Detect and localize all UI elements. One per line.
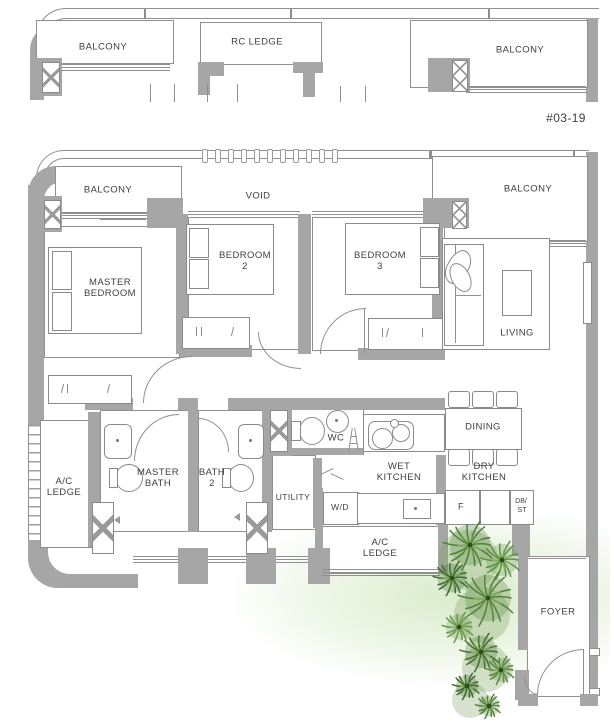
- window-x-marker-icon: [452, 201, 467, 229]
- window-lines: [276, 556, 308, 563]
- label-db-line2: ST: [518, 507, 527, 515]
- line: [290, 8, 292, 18]
- ladder-rung: [350, 443, 357, 444]
- toilet-tank: [109, 468, 118, 488]
- label-bath-2: BATH 2: [195, 467, 229, 489]
- toilet-icon: [228, 464, 254, 492]
- line: [528, 558, 586, 559]
- wall: [438, 522, 448, 574]
- floor-plan: BALCONY RC LEDGE BALCONY #03-19: [0, 0, 614, 728]
- wall: [198, 62, 210, 95]
- window-lines: [62, 212, 148, 219]
- line: [488, 8, 490, 18]
- label-balcony-left: BALCONY: [84, 184, 132, 195]
- wardrobe: [182, 317, 250, 349]
- door-arc-bedroom-2: [258, 332, 301, 369]
- label-balcony-right: BALCONY: [504, 183, 552, 194]
- line: [174, 84, 175, 102]
- window-x-marker-icon: [452, 60, 468, 92]
- dining-chair: [448, 391, 470, 408]
- window-x-marker-icon: [92, 502, 114, 554]
- vent-slot-icon: [267, 149, 273, 163]
- label-ac-ledge-kitchen: A/C LEDGE: [359, 537, 401, 559]
- vent-slot-icon: [215, 149, 221, 163]
- ladder-rung: [351, 436, 357, 437]
- label-upper-balcony-left: BALCONY: [79, 41, 127, 52]
- pillow: [420, 227, 439, 257]
- toilet-icon: [299, 417, 325, 445]
- window-lines: [322, 569, 440, 576]
- dry-kitchen-cabinet: [480, 490, 510, 525]
- label-master-bath: MASTER BATH: [132, 467, 184, 489]
- pillow: [52, 292, 72, 331]
- dining-chair: [472, 391, 494, 408]
- coffee-table: [502, 270, 532, 316]
- label-utility: UTILITY: [276, 492, 310, 502]
- wardrobe-tick: [201, 327, 202, 336]
- window-x-marker-icon: [246, 502, 268, 554]
- wall: [518, 694, 538, 706]
- pillow: [52, 251, 72, 290]
- wall: [228, 398, 445, 410]
- line: [150, 84, 151, 102]
- wall: [518, 552, 528, 650]
- wall: [580, 694, 598, 706]
- line: [365, 86, 366, 102]
- pillow: [420, 258, 439, 288]
- label-void: VOID: [246, 190, 271, 201]
- shower-arrow-icon: [234, 513, 240, 521]
- label-db-line1: DB/: [515, 498, 527, 506]
- label-washer-dryer: W/D: [331, 502, 349, 512]
- wall: [178, 548, 208, 584]
- line: [144, 8, 146, 18]
- wardrobe-tick: [196, 327, 197, 336]
- label-wc: WC: [328, 432, 345, 443]
- pillow: [189, 259, 209, 289]
- unit-number: #03-19: [546, 111, 586, 125]
- wardrobe-tick: [67, 384, 68, 393]
- label-bedroom-2: BEDROOM 2: [216, 250, 274, 272]
- toilet-tank: [291, 421, 301, 441]
- vent-slot-icon: [319, 149, 325, 163]
- label-dry-kitchen: DRY KITCHEN: [455, 461, 513, 483]
- window-x-marker-icon: [44, 200, 61, 229]
- wall: [285, 448, 363, 455]
- basin-dot: [249, 439, 252, 442]
- door-arc-master-bedroom: [143, 356, 192, 403]
- sink-dot: [414, 507, 417, 510]
- label-foyer: FOYER: [541, 606, 576, 617]
- label-wet-kitchen: WET KITCHEN: [370, 461, 428, 483]
- vent-slot-icon: [254, 149, 260, 163]
- line: [237, 84, 238, 102]
- shower-arrow-icon: [114, 516, 120, 524]
- label-dining: DINING: [465, 421, 501, 432]
- wardrobe: [368, 318, 445, 350]
- pillow: [189, 228, 209, 258]
- vent-slot-icon: [332, 149, 338, 163]
- wardrobe-tick: [422, 328, 423, 337]
- label-master-bedroom: MASTER BEDROOM: [77, 277, 143, 299]
- wall: [308, 548, 330, 584]
- label-living: LIVING: [500, 327, 534, 338]
- vent-slot-icon: [280, 149, 286, 163]
- wardrobe-tick: [382, 328, 383, 337]
- wall: [303, 62, 315, 97]
- dining-chair: [496, 391, 518, 408]
- vent-slot-icon: [202, 149, 208, 163]
- label-bedroom-3: BEDROOM 3: [351, 250, 409, 272]
- burner-small: [390, 419, 399, 428]
- label-upper-balcony-right: BALCONY: [496, 44, 544, 55]
- basin-dot: [335, 419, 338, 422]
- window-x-marker-icon: [42, 62, 60, 93]
- label-upper-rc-ledge: RC LEDGE: [231, 36, 283, 47]
- line: [340, 86, 341, 102]
- sliding-door-line: [100, 219, 146, 220]
- window-lines: [133, 556, 178, 563]
- wall: [512, 520, 530, 556]
- kitchen-counter: [357, 493, 445, 524]
- window-lines: [208, 556, 246, 563]
- utility-door-line: [330, 473, 343, 480]
- window-lines: [466, 86, 586, 93]
- vent-slot-icon: [241, 149, 247, 163]
- vent-slot-icon: [228, 149, 234, 163]
- vent-slot-icon: [306, 149, 312, 163]
- window-x-marker-icon: [270, 410, 288, 452]
- label-fridge: F: [458, 502, 464, 513]
- basin-dot: [116, 439, 119, 442]
- line: [207, 84, 208, 102]
- label-ac-ledge-left: A/C LEDGE: [44, 476, 84, 498]
- window-lines: [312, 211, 430, 218]
- burner: [372, 428, 393, 449]
- kitchen-sink: [403, 499, 431, 519]
- window-lines: [62, 64, 170, 71]
- sofa-line: [456, 295, 481, 296]
- vent-slot-icon: [293, 149, 299, 163]
- tv-console: [583, 262, 592, 324]
- window-lines: [188, 211, 300, 218]
